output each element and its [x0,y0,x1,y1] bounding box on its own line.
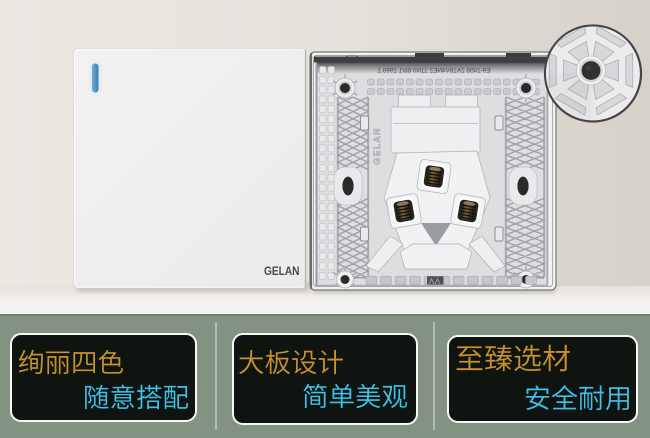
svg-text:GELAN: GELAN [372,127,382,165]
svg-text:GELAN: GELAN [264,264,300,278]
svg-text:E9-2458 2A18V4NE2 11N0 68/1 29: E9-2458 2A18V4NE2 11N0 68/1 2999.1 [377,68,491,75]
